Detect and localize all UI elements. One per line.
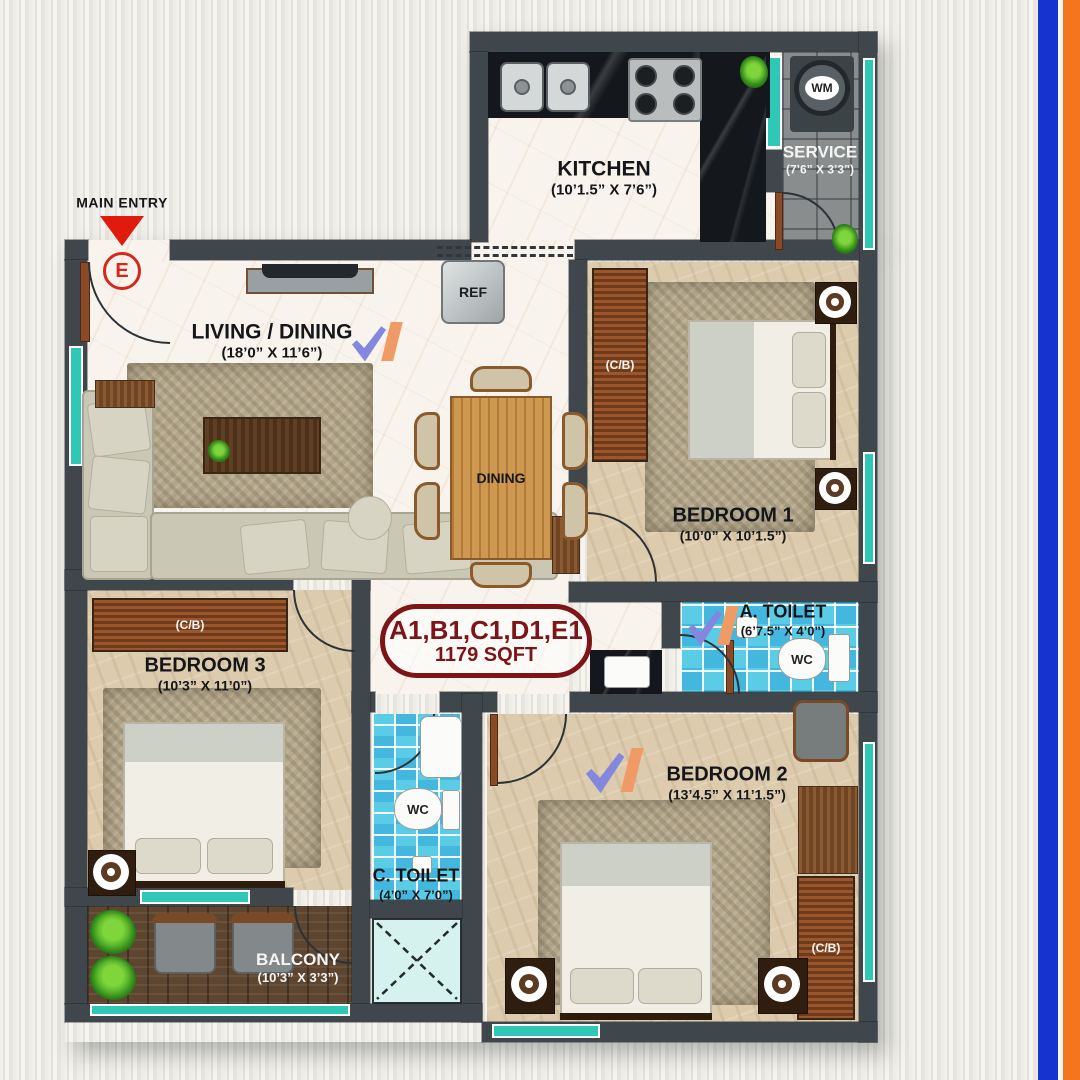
bed-headboard xyxy=(123,881,285,888)
bed-pillow xyxy=(135,838,201,874)
unit-codes: A1,B1,C1,D1,E1 xyxy=(389,616,583,645)
window-bedroom3-balcony xyxy=(140,890,250,904)
wall-a-toilet-left xyxy=(662,602,680,648)
room-name: KITCHEN xyxy=(551,156,657,181)
room-name: C. TOILET xyxy=(373,865,460,887)
window-bedroom2-bottom xyxy=(492,1024,600,1038)
c-toilet-cistern xyxy=(442,790,460,830)
balcony-chair-1 xyxy=(154,916,216,974)
shaft-cross-icon xyxy=(374,920,460,1002)
bed-headboard xyxy=(560,1013,712,1020)
living-label: LIVING / DINING (18’0” X 11’6”) xyxy=(191,319,352,362)
window-bedroom1-right xyxy=(863,452,875,564)
bed-pillow xyxy=(207,838,273,874)
washing-machine-drum: WM xyxy=(794,60,850,116)
sofa-cushion xyxy=(87,455,150,515)
room-name: SERVICE xyxy=(783,143,857,163)
dining-chair-left-2 xyxy=(414,482,440,540)
unit-area: 1179 SQFT xyxy=(435,644,537,666)
a-toilet-wc-seat: WC xyxy=(778,638,826,680)
bed-pillow xyxy=(570,968,634,1004)
sofa-left xyxy=(82,390,154,580)
window-living-left xyxy=(69,346,83,466)
kitchen-open-boundary xyxy=(437,246,573,257)
entry-arrow-icon xyxy=(100,216,144,246)
bedroom2-desk-chair xyxy=(793,700,849,762)
room-name: BEDROOM 2 xyxy=(666,763,787,787)
wall-service-divider-stub xyxy=(766,150,782,192)
burner-icon xyxy=(635,65,657,87)
wall-shaft-top xyxy=(370,900,462,918)
side-table-top xyxy=(95,380,155,408)
room-dims: (10’3” X 11’0”) xyxy=(144,678,265,695)
tv-icon xyxy=(262,264,358,278)
bed-pillow xyxy=(792,332,826,388)
coffee-table-plant xyxy=(208,440,230,462)
brand-check-icon xyxy=(586,748,638,796)
burner-icon xyxy=(673,65,695,87)
room-dims: (10’3” X 3’3”) xyxy=(256,970,340,986)
bedroom1-wardrobe: (C/B) xyxy=(592,268,648,462)
floor-plan-canvas: WM REF DINING (C/B) xyxy=(0,0,1080,1080)
c-toilet-shower xyxy=(420,716,462,778)
main-entry-label: MAIN ENTRY xyxy=(76,195,168,212)
bed-throw xyxy=(562,844,710,886)
bedroom2-desk xyxy=(798,786,858,874)
dining-chair-bottom xyxy=(470,562,532,588)
window-service-right xyxy=(863,58,875,250)
sink-drain-icon xyxy=(514,79,530,95)
orange-stripe xyxy=(1063,0,1080,1080)
wall-kitchen-left xyxy=(470,52,488,242)
bedroom3-bed xyxy=(123,722,285,888)
sofa-round-cushion xyxy=(348,496,392,540)
chair-back xyxy=(152,913,218,923)
chair-back xyxy=(230,913,296,923)
sofa-cushion xyxy=(240,519,311,576)
kitchen-label: KITCHEN (10’1.5” X 7’6”) xyxy=(551,156,657,199)
room-dims: (18’0” X 11’6”) xyxy=(191,345,352,363)
wc-label: WC xyxy=(407,802,429,817)
wall-living-bed1-divider xyxy=(569,260,587,512)
entry-symbol-letter: E xyxy=(115,260,128,283)
window-balcony-bottom xyxy=(90,1004,350,1016)
unit-badge: A1,B1,C1,D1,E1 1179 SQFT xyxy=(380,604,592,678)
lamp-icon xyxy=(93,854,129,890)
bedroom2-bed xyxy=(560,842,712,1020)
dining-table: DINING xyxy=(450,396,552,560)
balcony-label: BALCONY (10’3” X 3’3”) xyxy=(256,950,340,986)
service-plant xyxy=(832,224,858,254)
wall-living-top xyxy=(170,240,471,260)
balcony-plant-top xyxy=(90,910,136,954)
refrigerator: REF xyxy=(441,260,505,324)
shaft-floor xyxy=(372,918,462,1004)
dining-chair-left-1 xyxy=(414,412,440,470)
a-toilet-label: A. TOILET (6’7.5” X 4’0”) xyxy=(740,601,827,638)
wardrobe-label: (C/B) xyxy=(812,941,841,955)
dining-chair-right-1 xyxy=(562,412,588,470)
wardrobe-label: (C/B) xyxy=(606,358,635,372)
bedroom3-wardrobe: (C/B) xyxy=(92,598,288,652)
wardrobe-label: (C/B) xyxy=(176,618,205,632)
dining-chair-top xyxy=(470,366,532,392)
wall-kitchen-top xyxy=(470,32,877,52)
room-name: BALCONY xyxy=(256,950,340,970)
lamp-icon xyxy=(511,966,547,1002)
a-toilet-cistern xyxy=(828,634,850,682)
bed-headboard xyxy=(830,320,836,460)
bedroom1-label: BEDROOM 1 (10’0” X 10’1.5”) xyxy=(672,504,793,545)
room-dims: (13’4.5” X 11’1.5”) xyxy=(666,787,787,804)
room-name: LIVING / DINING xyxy=(191,319,352,344)
room-dims: (10’0” X 10’1.5”) xyxy=(672,528,793,545)
bedroom2-label: BEDROOM 2 (13’4.5” X 11’1.5”) xyxy=(666,763,787,804)
window-bedroom2-right xyxy=(863,742,875,982)
kitchen-plant xyxy=(740,56,768,88)
room-dims: (6’7.5” X 4’0”) xyxy=(740,623,827,639)
sofa-cushion xyxy=(90,516,148,572)
burner-icon xyxy=(673,93,695,115)
bed-throw xyxy=(125,724,283,762)
lamp-icon xyxy=(819,286,851,318)
service-label: SERVICE (7’6” X 3’3”) xyxy=(783,143,857,178)
kitchen-sink-right xyxy=(546,62,590,112)
wall-entry-left xyxy=(65,240,88,260)
wall-bedroom1-bottom xyxy=(569,582,877,602)
kitchen-sink-left xyxy=(500,62,544,112)
bed-pillow xyxy=(792,392,826,448)
room-name: BEDROOM 3 xyxy=(144,654,265,678)
bedroom3-label: BEDROOM 3 (10’3” X 11’0”) xyxy=(144,654,265,695)
blue-stripe xyxy=(1038,0,1058,1080)
wc-label: WC xyxy=(791,652,813,667)
bed-throw xyxy=(690,322,754,458)
bed-pillow xyxy=(638,968,702,1004)
lamp-icon xyxy=(819,472,851,504)
dining-chair-right-2 xyxy=(562,482,588,540)
room-name: BEDROOM 1 xyxy=(672,504,793,528)
c-toilet-wc-seat: WC xyxy=(394,788,442,830)
wall-c-toilet-right xyxy=(462,694,482,1022)
washing-machine-label: WM xyxy=(805,76,839,100)
brand-check-icon xyxy=(688,606,734,648)
burner-icon xyxy=(635,93,657,115)
lamp-icon xyxy=(764,966,800,1002)
room-dims: (7’6” X 3’3”) xyxy=(783,163,857,177)
sink-drain-icon xyxy=(560,79,576,95)
wash-basin xyxy=(604,656,650,688)
bedroom1-bed xyxy=(688,320,836,460)
refrigerator-label: REF xyxy=(459,284,487,300)
room-name: A. TOILET xyxy=(740,601,827,623)
kitchen-stove xyxy=(628,58,702,122)
dining-label: DINING xyxy=(477,470,526,487)
room-dims: (10’1.5” X 7’6”) xyxy=(551,182,657,200)
balcony-plant-bottom xyxy=(90,956,136,1000)
entry-symbol: E xyxy=(103,252,141,290)
room-dims: (4’0” X 7’0”) xyxy=(373,887,460,903)
c-toilet-label: C. TOILET (4’0” X 7’0”) xyxy=(373,865,460,902)
brand-check-icon xyxy=(352,322,398,364)
